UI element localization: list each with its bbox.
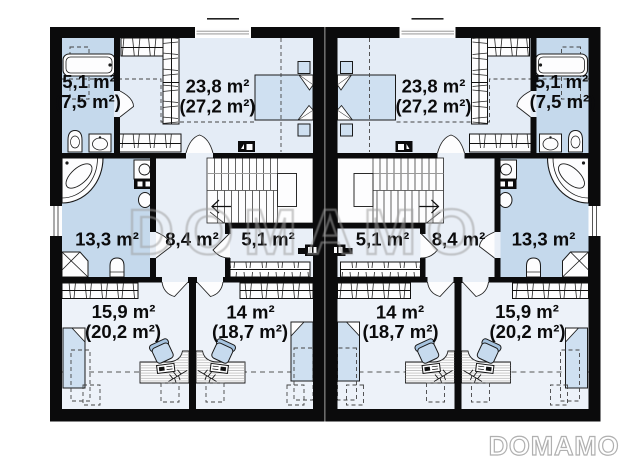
svg-text:14 m²: 14 m² (376, 302, 424, 323)
svg-text:14 m²: 14 m² (226, 302, 274, 323)
svg-text:(7,5 m²): (7,5 m²) (55, 91, 121, 112)
svg-text:23,8 m²: 23,8 m² (186, 76, 250, 97)
svg-text:(20,2 m²): (20,2 m²) (85, 321, 161, 342)
svg-text:(18,7 m²): (18,7 m²) (212, 321, 288, 342)
svg-text:15,9 m²: 15,9 m² (92, 301, 156, 322)
svg-text:(7,5 m²): (7,5 m²) (530, 91, 596, 112)
svg-text:(20,2 m²): (20,2 m²) (489, 321, 565, 342)
svg-text:5,1 m²: 5,1 m² (535, 71, 588, 92)
svg-text:23,8 m²: 23,8 m² (402, 76, 466, 97)
svg-text:5,1 m²: 5,1 m² (62, 71, 115, 92)
svg-text:(18,7 m²): (18,7 m²) (362, 321, 438, 342)
svg-text:13,3 m²: 13,3 m² (512, 229, 576, 250)
svg-text:DOMAMO: DOMAMO (128, 196, 487, 268)
svg-text:(27,2 m²): (27,2 m²) (395, 96, 471, 117)
svg-text:DOMAMO: DOMAMO (489, 431, 620, 461)
svg-text:15,9 m²: 15,9 m² (495, 301, 559, 322)
svg-text:(27,2 m²): (27,2 m²) (179, 96, 255, 117)
